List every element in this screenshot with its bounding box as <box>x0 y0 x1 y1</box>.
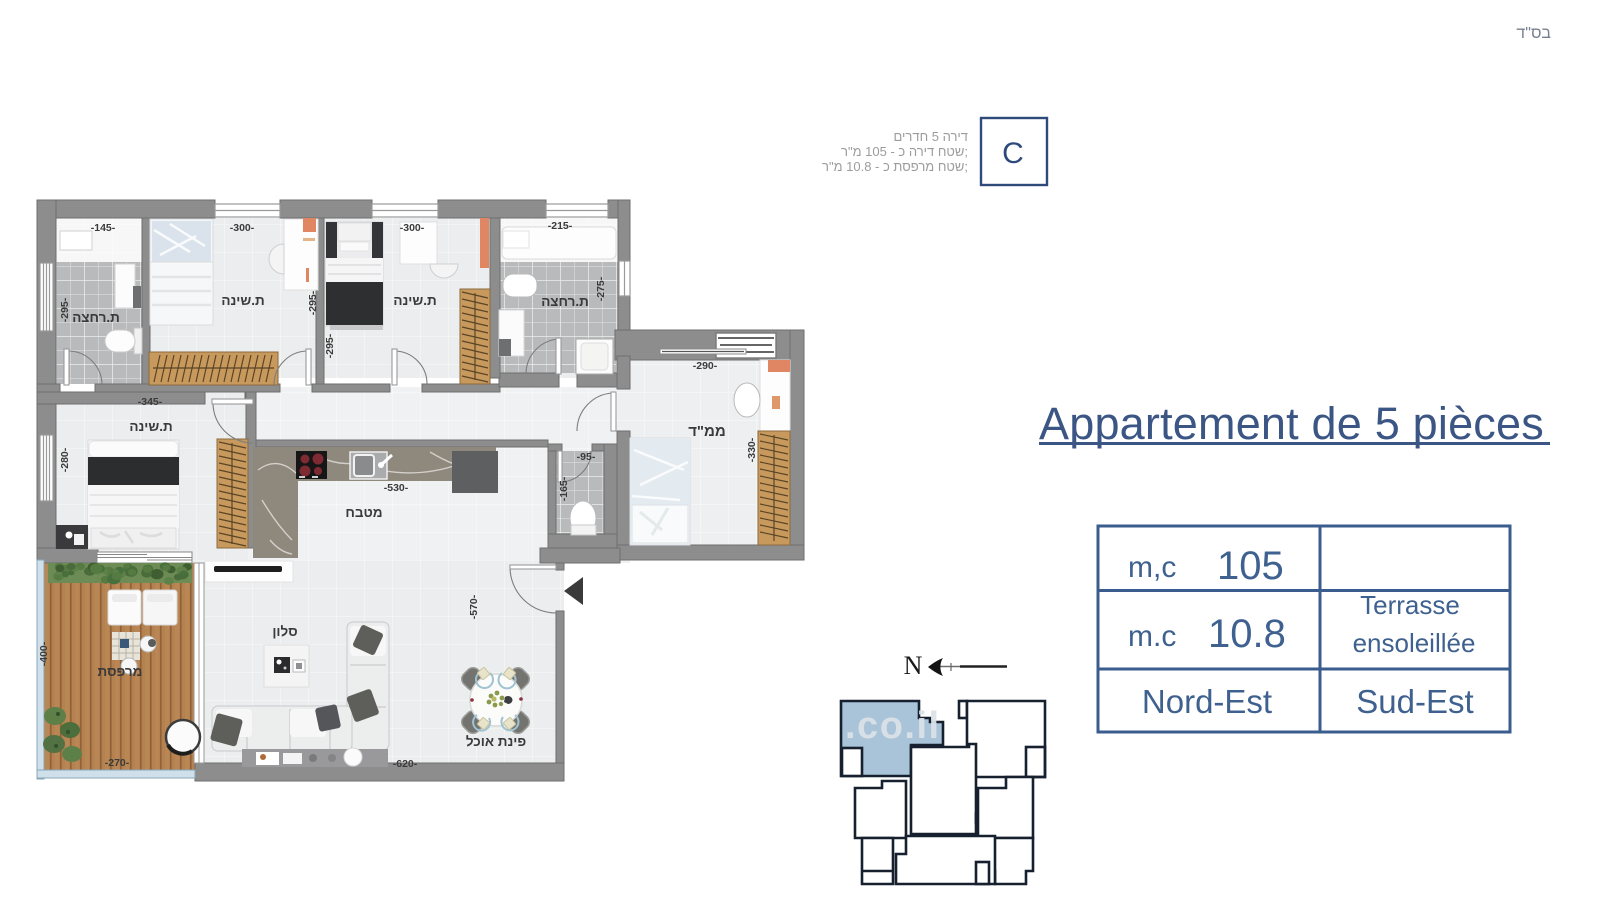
svg-text:-295-: -295- <box>59 297 71 322</box>
svg-text:ת.שינה: ת.שינה <box>393 293 436 308</box>
svg-text:ת.שינה: ת.שינה <box>221 293 264 308</box>
svg-text:-300-: -300- <box>230 222 255 234</box>
svg-text:סלון: סלון <box>272 624 297 639</box>
svg-text:105: 105 <box>1217 544 1284 588</box>
svg-text:Nord-Est: Nord-Est <box>1142 683 1272 720</box>
svg-text:-400-: -400- <box>38 641 50 666</box>
svg-text:-215-: -215- <box>548 220 573 232</box>
svg-text:ת.רחצה: ת.רחצה <box>72 310 120 325</box>
svg-text:-280-: -280- <box>59 447 71 472</box>
svg-text:-530-: -530- <box>384 482 409 494</box>
svg-text:-330-: -330- <box>746 437 758 462</box>
svg-text:Terrasse: Terrasse <box>1360 590 1460 620</box>
svg-text:-275-: -275- <box>595 276 607 301</box>
svg-text:m,c: m,c <box>1128 551 1176 584</box>
svg-text:שטח מרפסת כ - 10.8 מ"ר;: שטח מרפסת כ - 10.8 מ"ר; <box>822 159 968 174</box>
svg-text:-345-: -345- <box>138 396 163 408</box>
svg-text:-300-: -300- <box>400 222 425 234</box>
svg-text:.co.il: .co.il <box>845 705 941 747</box>
svg-text:ensoleillée: ensoleillée <box>1353 628 1476 658</box>
svg-text:ממ"ד: ממ"ד <box>688 423 726 440</box>
svg-text:שטח דירה כ - 105 מ"ר;: שטח דירה כ - 105 מ"ר; <box>841 144 968 159</box>
svg-text:מרפסת: מרפסת <box>98 664 143 679</box>
svg-text:-620-: -620- <box>393 758 418 770</box>
svg-text:-295-: -295- <box>324 333 336 358</box>
svg-text:-165-: -165- <box>558 476 570 501</box>
svg-text:C: C <box>1002 137 1024 170</box>
svg-text:פינת אוכל: פינת אוכל <box>466 734 527 749</box>
svg-text:ת.שינה: ת.שינה <box>129 419 172 434</box>
svg-text:בס"ד: בס"ד <box>1516 25 1551 42</box>
svg-text:-145-: -145- <box>91 222 116 234</box>
svg-text:-270-: -270- <box>105 757 130 769</box>
svg-text:N: N <box>904 651 923 680</box>
svg-text:Sud-Est: Sud-Est <box>1356 683 1473 720</box>
svg-text:-95-: -95- <box>577 451 596 463</box>
svg-text:m.c: m.c <box>1128 620 1176 653</box>
svg-text:דירה 5 חדרים: דירה 5 חדרים <box>894 129 969 144</box>
svg-text:ת.רחצה: ת.רחצה <box>541 294 589 309</box>
svg-text:-290-: -290- <box>693 360 718 372</box>
svg-text:Appartement de 5 pièces: Appartement de 5 pièces <box>1039 398 1544 449</box>
svg-text:-570-: -570- <box>468 594 480 619</box>
svg-text:מטבח: מטבח <box>345 505 382 520</box>
svg-text:10.8: 10.8 <box>1208 612 1286 656</box>
svg-text:-295-: -295- <box>307 290 319 315</box>
